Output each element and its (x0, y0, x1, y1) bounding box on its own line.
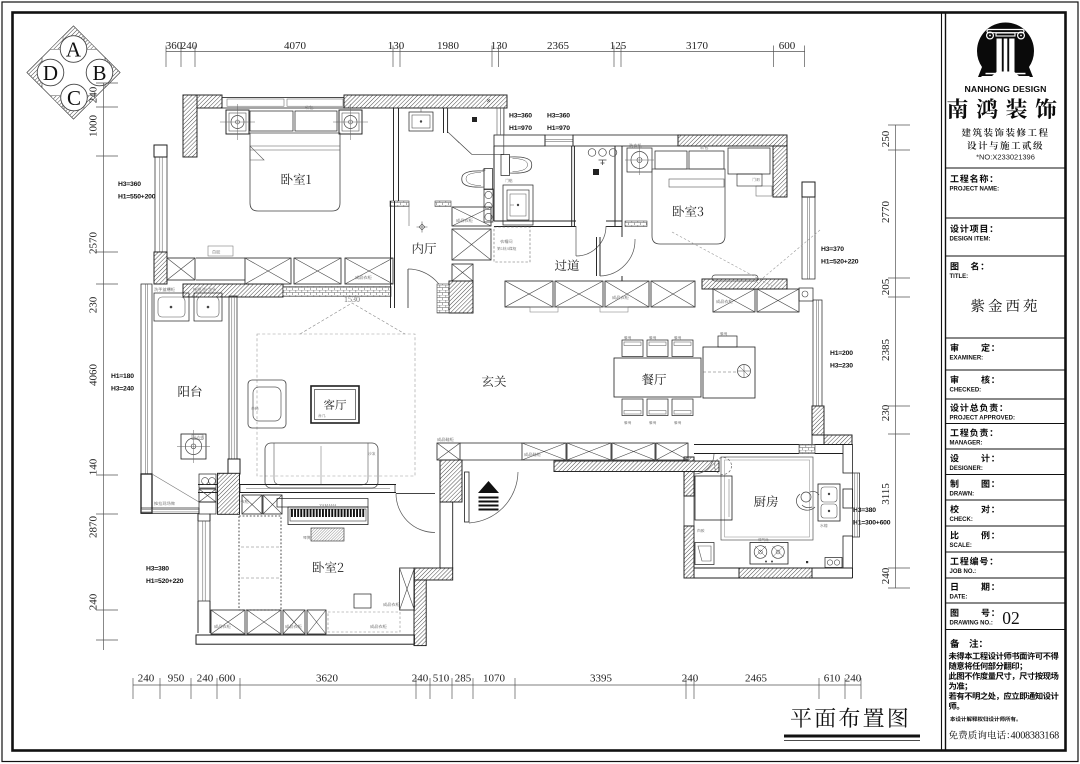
svg-text:NANHONG DESIGN: NANHONG DESIGN (964, 84, 1046, 94)
svg-text:D: D (43, 61, 58, 85)
svg-text:1000: 1000 (88, 115, 100, 138)
svg-text:2465: 2465 (745, 673, 768, 685)
svg-text:2570: 2570 (88, 232, 100, 255)
svg-text:2365: 2365 (547, 40, 570, 52)
svg-text:2770: 2770 (880, 201, 892, 224)
svg-text:YAMAHA: YAMAHA (319, 503, 337, 508)
svg-text:H1=550+200: H1=550+200 (118, 193, 156, 200)
svg-text:CHECKED:: CHECKED: (950, 388, 982, 394)
svg-text:130: 130 (491, 40, 508, 52)
svg-text:1980: 1980 (437, 40, 460, 52)
svg-text:510: 510 (433, 673, 450, 685)
svg-text:PROJECT NAME:: PROJECT NAME: (950, 187, 1000, 193)
svg-text:H1=520+220: H1=520+220 (821, 258, 859, 265)
svg-text:TITLE:: TITLE: (950, 274, 969, 280)
svg-text:250: 250 (880, 130, 892, 147)
svg-text:600: 600 (779, 40, 796, 52)
svg-text:240: 240 (845, 673, 862, 685)
svg-text:3620: 3620 (316, 673, 339, 685)
svg-text:C: C (67, 86, 81, 110)
svg-text:H1=970: H1=970 (547, 125, 570, 132)
svg-text:1070: 1070 (483, 673, 506, 685)
svg-text:240: 240 (682, 673, 699, 685)
svg-text:PROJECT APPROVED:: PROJECT APPROVED: (950, 416, 1015, 422)
svg-text:230: 230 (880, 404, 892, 421)
svg-text:*NO:X233021396: *NO:X233021396 (976, 153, 1035, 162)
svg-text:240: 240 (880, 567, 892, 584)
svg-text:240: 240 (88, 86, 100, 103)
svg-text:3170: 3170 (686, 40, 709, 52)
svg-text:MANAGER:: MANAGER: (950, 441, 983, 447)
svg-text:H3=230: H3=230 (830, 362, 853, 369)
svg-text:H1=200: H1=200 (830, 350, 853, 357)
svg-text:600: 600 (219, 673, 236, 685)
svg-text:205: 205 (880, 278, 892, 295)
svg-text:H1=970: H1=970 (509, 125, 532, 132)
svg-text:2385: 2385 (880, 339, 892, 362)
svg-text:EXAMINER:: EXAMINER: (950, 356, 984, 362)
svg-text:H3=360: H3=360 (547, 113, 570, 120)
svg-text:B: B (92, 61, 106, 85)
svg-text:1530: 1530 (344, 295, 360, 304)
svg-text:3395: 3395 (590, 673, 613, 685)
svg-text:240: 240 (181, 40, 198, 52)
svg-text:A: A (66, 38, 82, 62)
svg-text:950: 950 (168, 673, 185, 685)
svg-text:H3=240: H3=240 (111, 385, 134, 392)
svg-text:4070: 4070 (284, 40, 307, 52)
svg-text:2870: 2870 (88, 516, 100, 539)
svg-text:JOB NO.:: JOB NO.: (950, 569, 977, 575)
svg-text:CHECK:: CHECK: (950, 517, 973, 523)
svg-text:4008383168: 4008383168 (1011, 731, 1060, 742)
svg-text:130: 130 (388, 40, 405, 52)
svg-text:DESIGN ITEM:: DESIGN ITEM: (950, 237, 991, 243)
svg-text:H3=360: H3=360 (509, 113, 532, 120)
svg-text:4060: 4060 (88, 364, 100, 387)
svg-text:H3=380: H3=380 (853, 507, 876, 514)
svg-text:DRAWING NO.:: DRAWING NO.: (950, 621, 993, 627)
svg-text:SCALE:: SCALE: (950, 543, 972, 549)
svg-text:125: 125 (610, 40, 627, 52)
svg-text:H3=370: H3=370 (821, 246, 844, 253)
svg-text:DESIGNER:: DESIGNER: (950, 466, 983, 472)
svg-text:240: 240 (197, 673, 214, 685)
svg-text:610: 610 (824, 673, 841, 685)
svg-text:H1=300+600: H1=300+600 (853, 519, 891, 526)
svg-text:DATE:: DATE: (950, 595, 968, 601)
svg-text:DRAWN:: DRAWN: (950, 492, 975, 498)
svg-text:02: 02 (1002, 608, 1020, 628)
svg-text:240: 240 (88, 593, 100, 610)
svg-text:H3=360: H3=360 (118, 181, 141, 188)
svg-text:140: 140 (88, 458, 100, 475)
svg-text:285: 285 (455, 673, 472, 685)
svg-text:H1=520+220: H1=520+220 (146, 578, 184, 585)
svg-text:230: 230 (88, 296, 100, 313)
svg-text:240: 240 (412, 673, 429, 685)
svg-text:3115: 3115 (880, 483, 892, 505)
svg-text:H1=180: H1=180 (111, 373, 134, 380)
svg-text:240: 240 (138, 673, 155, 685)
svg-text:H3=380: H3=380 (146, 566, 169, 573)
